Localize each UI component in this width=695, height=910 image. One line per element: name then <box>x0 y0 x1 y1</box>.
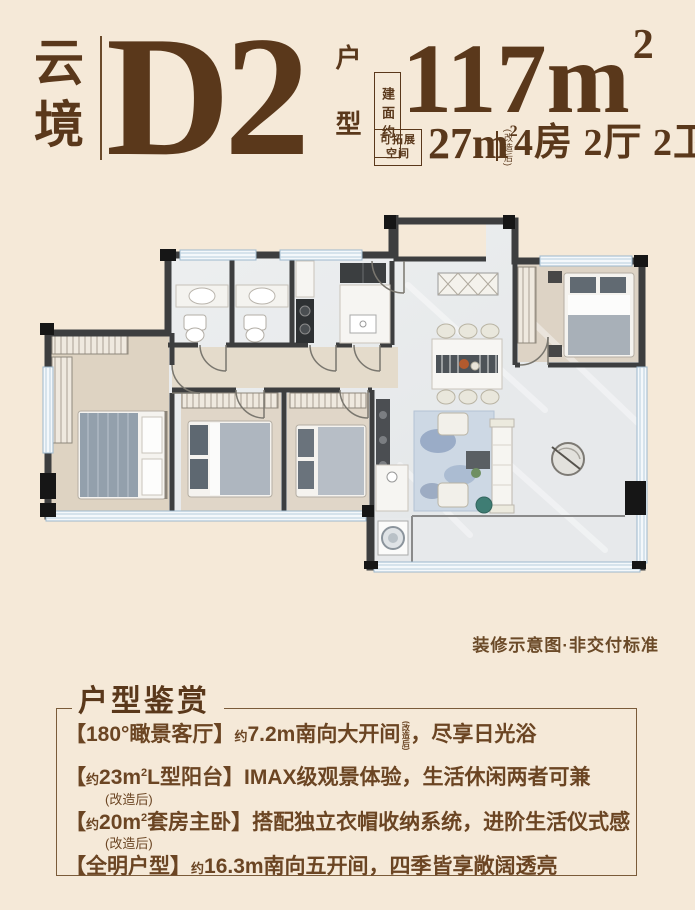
bracket-close: 】 <box>223 766 244 789</box>
highlight-item-2: 【约23m2L型阳台】IMAX级观景体验，生活休闲两者可兼 <box>65 765 628 791</box>
bracket-close: 】 <box>170 855 191 878</box>
kitchen-fixtures <box>296 261 390 343</box>
item1-approx: 约 <box>234 729 247 744</box>
dining-set <box>432 324 502 404</box>
item4-approx: 约 <box>191 861 204 876</box>
expand-tag-line2: 空间 <box>386 148 410 162</box>
renovate-note: (改造后) <box>503 129 512 167</box>
item2-under-note: (改造后) <box>105 793 628 807</box>
plan-disclaimer: 装修示意图·非交付标准 <box>472 631 659 656</box>
area-number: 117m <box>402 23 630 134</box>
highlight-item-4: 【全明户型】约16.3m南向五开间，四季皆享敞阔透亮 <box>65 854 628 880</box>
item2-head-value: 23m <box>99 766 141 789</box>
expandable-tag-box: 可拓展 空间 <box>374 129 422 166</box>
bracket-close: 】 <box>213 723 234 746</box>
highlights-frame: 【180°瞰景客厅】约7.2m南向大开间(改造后)，尽享日光浴 【约23m2L型… <box>56 708 637 876</box>
item2-head: L型阳台 <box>147 766 223 789</box>
item1-tail: ，尽享日光浴 <box>410 723 536 746</box>
item1-body: 7.2m南向大开间 <box>247 723 400 746</box>
bracket-open: 【 <box>65 811 86 834</box>
expand-tag-line1: 可拓展 <box>380 134 416 148</box>
room-layout-text: 4房 2厅 2卫 <box>514 124 695 162</box>
laundry <box>376 465 408 555</box>
item1-head: 180°瞰景客厅 <box>86 723 213 746</box>
item3-under-note: (改造后) <box>105 837 628 851</box>
floor-plan-svg <box>40 215 665 625</box>
item3-head-approx: 约 <box>86 817 99 832</box>
area-sup: 2 <box>633 22 654 68</box>
item3-head-value: 20m <box>99 811 141 834</box>
header-separator <box>496 131 498 161</box>
item3-body: 搭配独立衣帽收纳系统，进阶生活仪式感 <box>252 811 630 834</box>
highlight-item-1: 【180°瞰景客厅】约7.2m南向大开间(改造后)，尽享日光浴 <box>65 721 628 750</box>
bracket-open: 【 <box>65 766 86 789</box>
item4-head: 全明户型 <box>86 855 170 878</box>
bedroom-a-bed <box>188 421 272 497</box>
brand-name: 云境 <box>30 36 80 160</box>
bracket-close: 】 <box>231 811 252 834</box>
shoe-cabinet <box>438 273 498 295</box>
balcony <box>552 443 584 475</box>
floor-plan <box>40 215 665 625</box>
bracket-open: 【 <box>65 855 86 878</box>
item4-body: 16.3m南向五开间，四季皆享敞阔透亮 <box>204 855 558 878</box>
master-bed <box>78 411 166 499</box>
item1-note: (改造后) <box>401 721 409 750</box>
item3-head: 套房主卧 <box>147 811 231 834</box>
plan-type-label: 户型 <box>333 44 359 176</box>
floorplan-poster: 云境 D2 户型 建面约 117m2 可拓展 空间 27m2 (改造后) 4房 … <box>0 0 695 910</box>
bedroom-b-bed <box>296 425 366 497</box>
highlights-title: 户型鉴赏 <box>72 684 224 720</box>
plan-code: D2 <box>106 30 304 164</box>
bracket-open: 【 <box>65 723 86 746</box>
highlight-item-3: 【约20m2套房主卧】搭配独立衣帽收纳系统，进阶生活仪式感 <box>65 810 628 836</box>
item2-body: IMAX级观景体验，生活休闲两者可兼 <box>244 766 591 789</box>
brand-divider <box>100 36 102 160</box>
built-area-value: 117m2 <box>402 24 654 129</box>
item2-head-approx: 约 <box>86 772 99 787</box>
